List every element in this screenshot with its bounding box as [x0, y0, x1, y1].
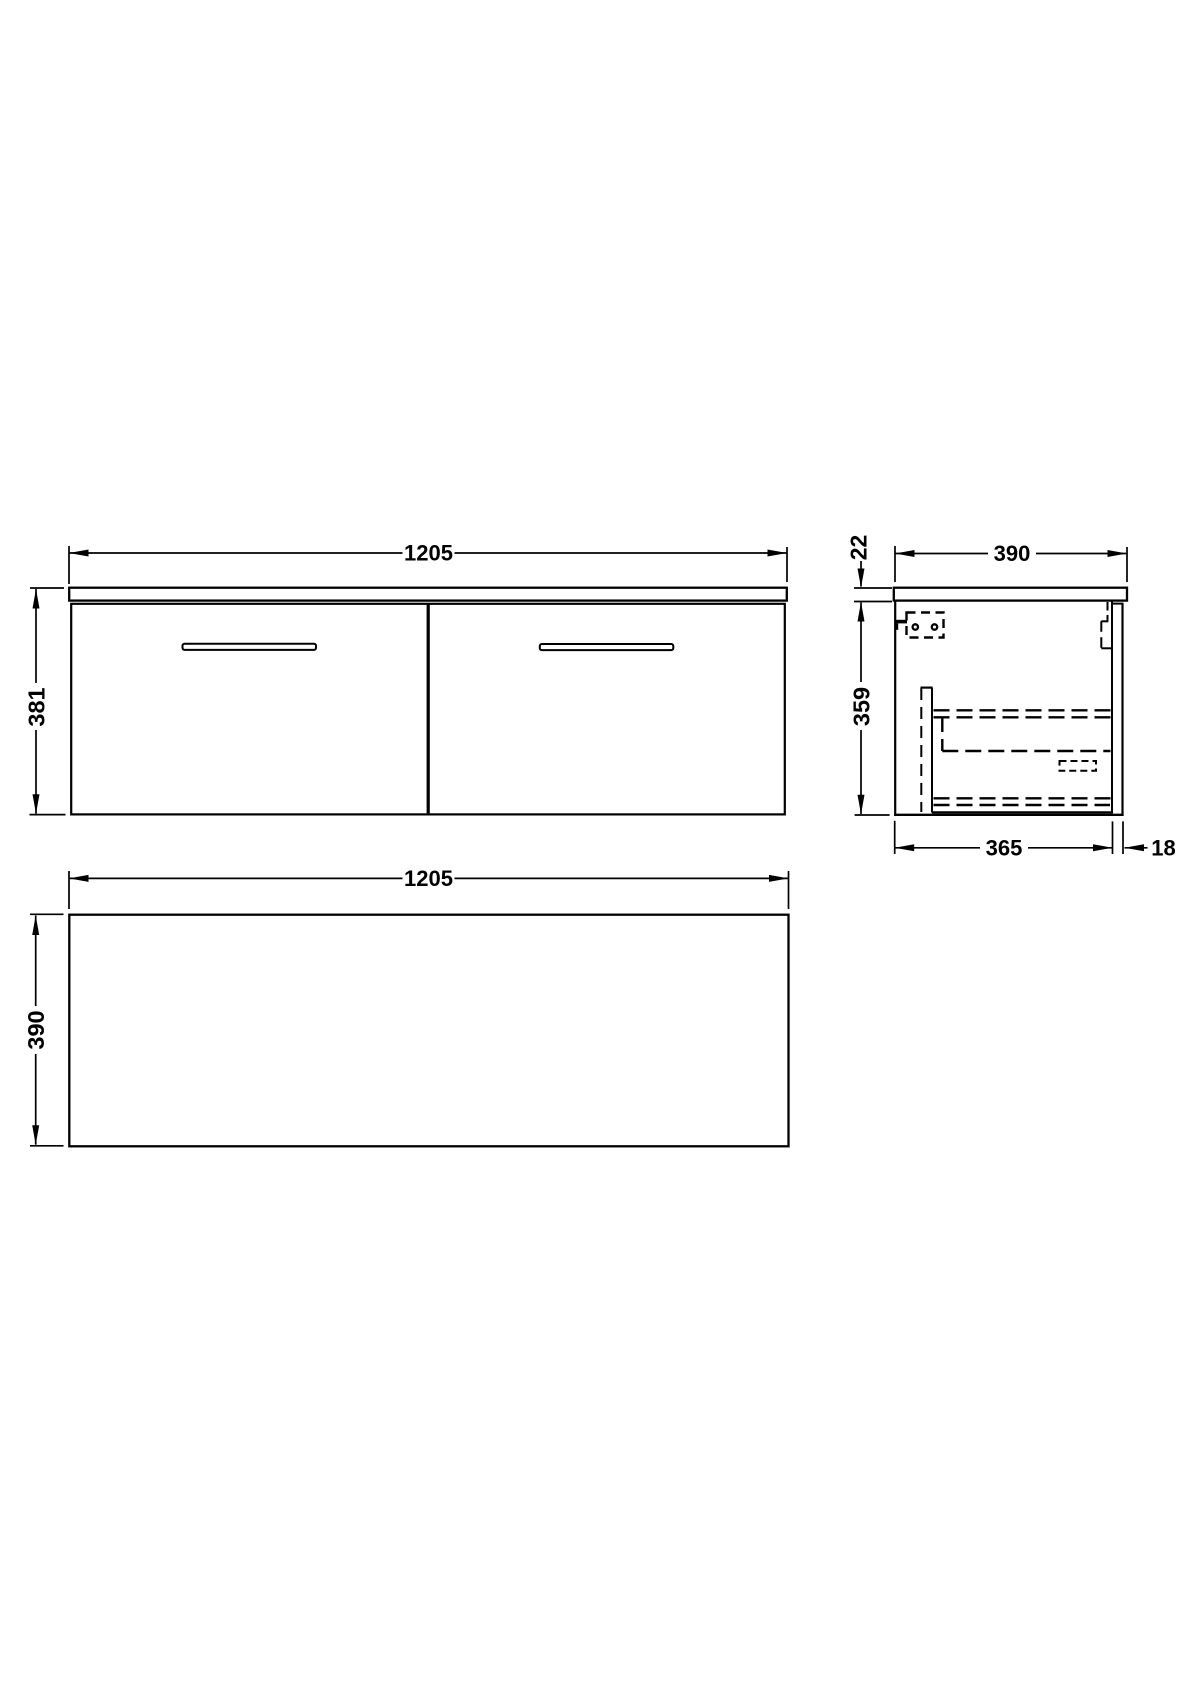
svg-text:390: 390: [994, 541, 1031, 566]
svg-text:22: 22: [846, 535, 872, 561]
svg-text:359: 359: [849, 687, 875, 726]
svg-text:1205: 1205: [404, 541, 453, 566]
svg-text:381: 381: [24, 687, 50, 726]
svg-text:365: 365: [986, 835, 1023, 860]
svg-text:1205: 1205: [404, 866, 453, 891]
svg-text:390: 390: [23, 1010, 49, 1049]
svg-text:18: 18: [1151, 835, 1175, 860]
